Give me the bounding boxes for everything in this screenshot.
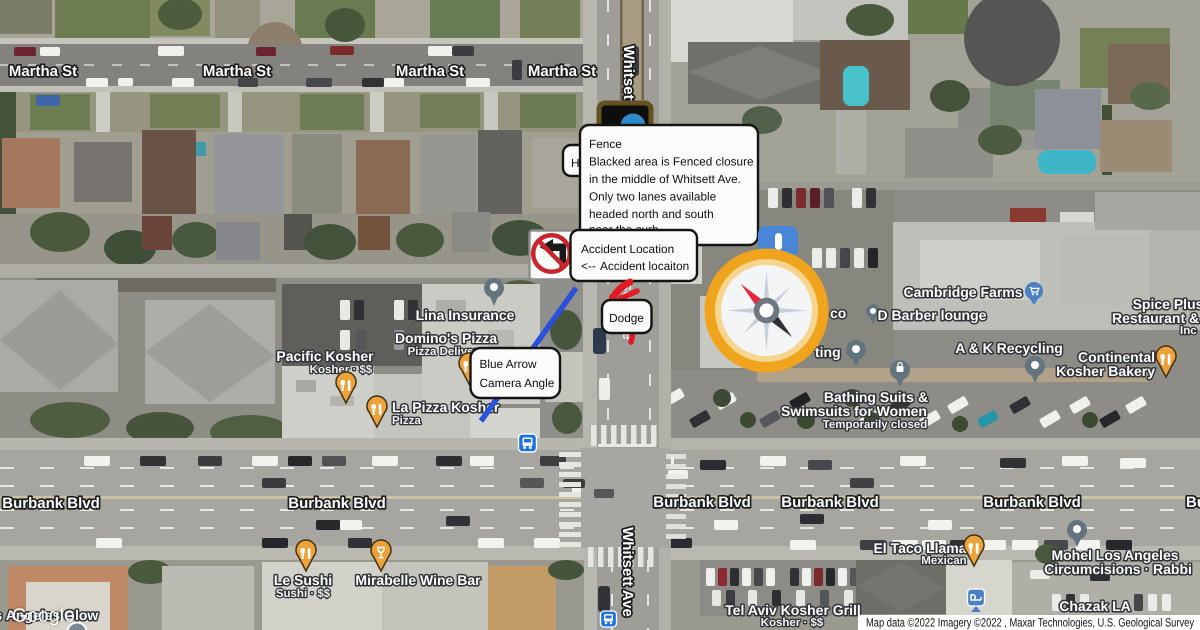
svg-text:Mirabelle Wine Bar: Mirabelle Wine Bar: [355, 572, 481, 588]
svg-text:Blue Arrow: Blue Arrow: [480, 357, 538, 371]
svg-text:Fence: Fence: [589, 137, 622, 151]
svg-text:Burbank Blvd: Burbank Blvd: [2, 495, 100, 512]
svg-text:Accident Location: Accident Location: [581, 242, 674, 256]
svg-text:Burbank Blvd: Burbank Blvd: [983, 494, 1081, 511]
svg-text:Whitsett Ave: Whitsett Ave: [619, 527, 636, 617]
svg-text:Lina Insurance: Lina Insurance: [416, 307, 515, 323]
svg-text:Accident locaiton: Accident locaiton: [600, 259, 689, 273]
svg-text:H: H: [571, 156, 580, 170]
svg-text:Kosher Bakery: Kosher Bakery: [1056, 363, 1155, 379]
svg-text:Map data ©2022 Imagery ©2022 ,: Map data ©2022 Imagery ©2022 , Maxar Tec…: [866, 616, 1194, 630]
svg-text:A & K Recycling: A & K Recycling: [955, 340, 1063, 356]
svg-text:headed north and south: headed north and south: [589, 207, 714, 221]
svg-text:Kosher · $$: Kosher · $$: [761, 617, 824, 629]
svg-text:Inc: Inc: [1180, 325, 1197, 337]
svg-text:Mexican: Mexican: [921, 555, 966, 567]
svg-text:Camera Angle: Camera Angle: [480, 376, 555, 390]
svg-text:Domino's Pizza: Domino's Pizza: [395, 330, 497, 346]
svg-text:Swimsuits for Women: Swimsuits for Women: [781, 403, 927, 419]
svg-text:El Taco Llama: El Taco Llama: [873, 540, 966, 556]
svg-text:Blacked area is Fenced closure: Blacked area is Fenced closure: [589, 155, 754, 169]
svg-text:Pacific Kosher: Pacific Kosher: [276, 348, 374, 364]
svg-text:Cambridge Farms: Cambridge Farms: [903, 284, 1022, 300]
svg-text:Martha St: Martha St: [9, 63, 77, 80]
svg-text:Circumcisions · Rabbi: Circumcisions · Rabbi: [1044, 561, 1192, 577]
svg-text:<--: <--: [581, 259, 596, 273]
svg-text:co: co: [830, 305, 846, 321]
svg-text:Sushi · $$: Sushi · $$: [276, 588, 331, 600]
svg-text:Temporarily closed: Temporarily closed: [823, 419, 928, 431]
svg-text:Burbank Blvd: Burbank Blvd: [781, 494, 879, 511]
svg-text:Chazak LA: Chazak LA: [1059, 598, 1131, 614]
svg-text:Burbank Blvd: Burbank Blvd: [653, 494, 751, 511]
svg-text:Restaurant & C: Restaurant & C: [1112, 310, 1200, 326]
svg-text:Google: Google: [12, 606, 75, 627]
svg-text:Whitsett: Whitsett: [620, 45, 637, 104]
svg-text:Bu: Bu: [1186, 494, 1200, 511]
svg-text:Martha St: Martha St: [528, 63, 596, 80]
svg-text:in the middle of Whitsett Ave.: in the middle of Whitsett Ave.: [589, 172, 741, 186]
svg-text:Burbank Blvd: Burbank Blvd: [288, 495, 386, 512]
svg-text:Dodge: Dodge: [609, 311, 644, 325]
svg-text:Pizza: Pizza: [392, 415, 421, 427]
svg-text:Martha St: Martha St: [396, 63, 464, 80]
svg-text:Only two lanes available: Only two lanes available: [589, 190, 717, 204]
svg-text:Tel Aviv Kosher Grill: Tel Aviv Kosher Grill: [725, 602, 861, 618]
svg-text:ting: ting: [815, 344, 841, 360]
svg-text:D Barber lounge: D Barber lounge: [878, 307, 987, 323]
svg-text:Le Sushi: Le Sushi: [274, 572, 332, 588]
svg-text:Martha St: Martha St: [203, 63, 271, 80]
